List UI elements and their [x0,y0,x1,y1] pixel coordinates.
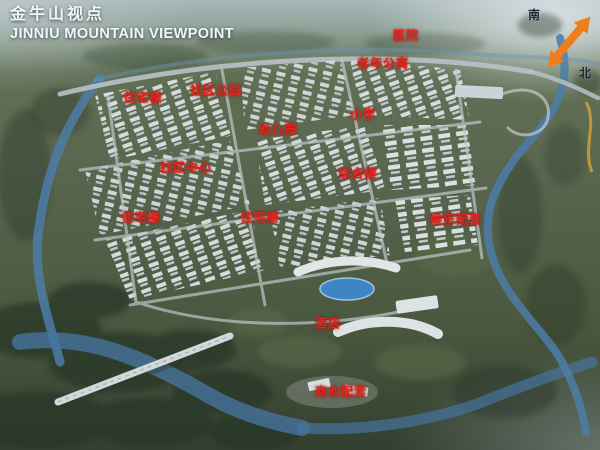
map-label-11: 酒店 [315,315,341,332]
rollercoaster-track [586,102,592,172]
map-label-0: 医院 [393,27,419,44]
map-label-10: 娱乐配套 [430,211,482,228]
aerial-map-rendering [0,0,600,450]
title-chinese: 金牛山视点 [10,5,234,25]
map-label-3: 社区公园 [190,82,242,99]
map-label-7: 综合楼 [338,165,377,182]
map-label-9: 住宅楼 [240,209,279,226]
map-label-1: 老年公寓 [357,55,409,72]
aerial-rendering-viewport: 金牛山视点 JINNIU MOUNTAIN VIEWPOINT 南 北 医院老年… [0,0,600,450]
map-label-5: 小学 [350,106,376,123]
title-english: JINNIU MOUNTAIN VIEWPOINT [10,25,234,43]
viewpoint-header: 金牛山视点 JINNIU MOUNTAIN VIEWPOINT [10,5,234,43]
compass-north-label: 北 [579,64,591,81]
map-label-12: 商业配套 [315,383,367,400]
map-label-4: 幼儿园 [258,121,297,138]
map-label-6: 社区中心 [160,159,212,176]
map-label-2: 住宅楼 [123,89,162,106]
map-label-8: 住宅楼 [121,209,160,226]
compass-south-label: 南 [528,6,540,23]
